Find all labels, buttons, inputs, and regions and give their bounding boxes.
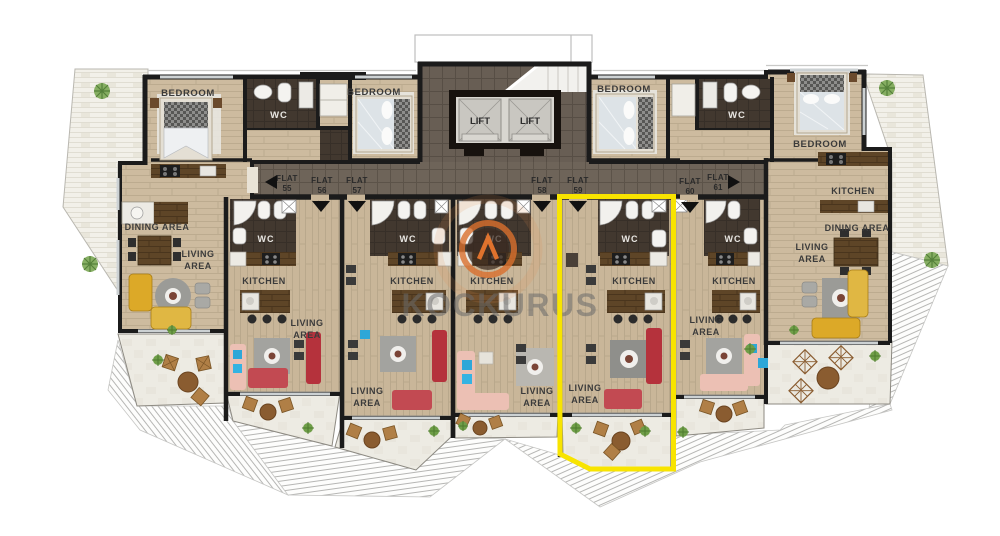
svg-text:59: 59 [574,186,583,195]
svg-text:FLAT: FLAT [679,177,701,186]
svg-text:BEDROOM: BEDROOM [347,87,401,98]
svg-text:WC: WC [400,234,417,244]
svg-text:AREA: AREA [692,327,720,337]
svg-text:WC: WC [725,234,742,244]
svg-text:56: 56 [318,186,327,195]
svg-text:DINING AREA: DINING AREA [825,223,890,233]
svg-text:61: 61 [714,183,723,192]
svg-text:55: 55 [283,184,292,193]
svg-text:LIVING: LIVING [181,249,214,259]
svg-text:AREA: AREA [353,398,381,408]
svg-text:FLAT: FLAT [567,176,589,185]
svg-text:60: 60 [686,187,695,196]
svg-text:BEDROOM: BEDROOM [597,84,651,95]
svg-text:WC: WC [258,234,275,244]
svg-text:AREA: AREA [798,254,826,264]
svg-text:LIVING: LIVING [290,318,323,328]
svg-text:FLAT: FLAT [276,174,298,183]
svg-text:57: 57 [353,186,362,195]
svg-text:FLAT: FLAT [346,176,368,185]
svg-text:WC: WC [622,234,639,244]
svg-text:FLAT: FLAT [531,176,553,185]
svg-text:LIVING: LIVING [520,386,553,396]
svg-text:DINING AREA: DINING AREA [125,222,190,232]
svg-text:KITCHEN: KITCHEN [831,186,875,196]
svg-text:LIVING: LIVING [568,383,601,393]
svg-text:KITCHEN: KITCHEN [612,276,656,286]
svg-text:FLAT: FLAT [311,176,333,185]
svg-text:LIVING: LIVING [795,242,828,252]
svg-text:KOCKURUS: KOCKURUS [402,287,599,323]
svg-text:FLAT: FLAT [707,173,729,182]
svg-text:KITCHEN: KITCHEN [242,276,286,286]
svg-text:AREA: AREA [523,398,551,408]
svg-text:WC: WC [270,110,288,121]
svg-text:LIVING: LIVING [689,315,722,325]
svg-text:BEDROOM: BEDROOM [793,139,847,150]
svg-text:AREA: AREA [293,330,321,340]
svg-text:BEDROOM: BEDROOM [161,88,215,99]
svg-text:AREA: AREA [571,395,599,405]
svg-text:AREA: AREA [184,261,212,271]
svg-text:LIFT: LIFT [470,116,490,127]
svg-text:LIFT: LIFT [520,116,540,127]
svg-text:KITCHEN: KITCHEN [712,276,756,286]
svg-text:WC: WC [728,110,746,121]
svg-text:58: 58 [538,186,547,195]
svg-text:KITCHEN: KITCHEN [390,276,434,286]
svg-text:LIVING: LIVING [350,386,383,396]
